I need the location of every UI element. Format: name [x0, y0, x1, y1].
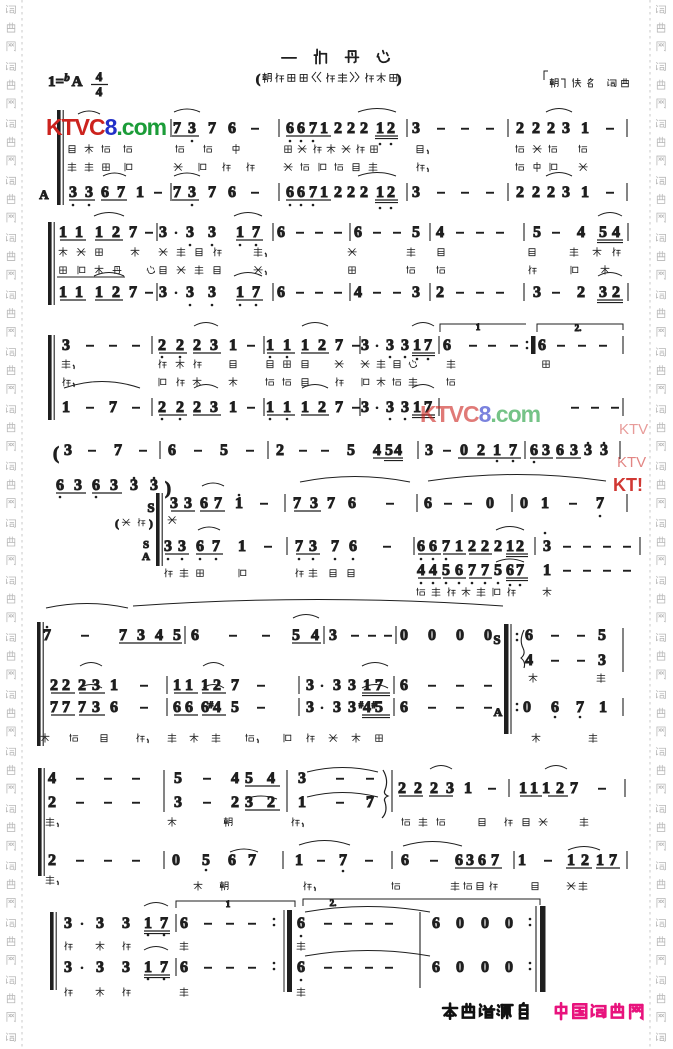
svg-text:2: 2 [398, 780, 406, 797]
svg-text:4: 4 [363, 699, 371, 716]
svg-text:6: 6 [228, 852, 236, 869]
svg-text:6: 6 [432, 959, 440, 976]
svg-text:7: 7 [173, 184, 181, 201]
svg-text:7: 7 [214, 495, 222, 512]
svg-text:6: 6 [455, 852, 463, 869]
svg-text:): ) [149, 518, 153, 530]
svg-text:3: 3 [466, 852, 474, 869]
svg-text:0: 0 [456, 959, 464, 976]
svg-text:0: 0 [400, 627, 408, 644]
svg-text:4: 4 [612, 224, 620, 241]
svg-text:6: 6 [200, 495, 208, 512]
svg-text:4: 4 [96, 69, 103, 84]
svg-text:3: 3 [208, 284, 216, 301]
svg-text:1: 1 [173, 677, 181, 694]
svg-text:1: 1 [413, 337, 421, 354]
svg-text:3: 3 [184, 495, 192, 512]
svg-text:2: 2 [430, 780, 438, 797]
svg-text:6: 6 [185, 699, 193, 716]
svg-text:6: 6 [110, 699, 118, 716]
svg-text:2: 2 [387, 184, 395, 201]
svg-text:5: 5 [599, 224, 607, 241]
svg-text:6: 6 [168, 442, 176, 459]
svg-text:3: 3 [412, 184, 420, 201]
svg-text:1: 1 [567, 852, 575, 869]
svg-text:3: 3 [386, 399, 394, 416]
svg-text:KTV: KTV [619, 421, 648, 438]
svg-text:(: ( [53, 443, 59, 464]
svg-text:0: 0 [505, 959, 513, 976]
svg-text:2: 2 [48, 794, 56, 811]
svg-text:1: 1 [376, 184, 384, 201]
svg-text:2: 2 [612, 284, 620, 301]
svg-text:7: 7 [570, 780, 578, 797]
svg-text:7: 7 [331, 538, 339, 555]
svg-text:3: 3 [348, 699, 356, 716]
svg-text:2: 2 [50, 677, 58, 694]
svg-text:3: 3 [361, 399, 369, 416]
svg-text:3: 3 [333, 699, 341, 716]
svg-text:7: 7 [481, 562, 489, 579]
svg-text:3: 3 [309, 538, 317, 555]
svg-text:2: 2 [577, 284, 585, 301]
svg-text:1: 1 [226, 899, 231, 909]
svg-text:6: 6 [551, 699, 559, 716]
svg-text:6: 6 [173, 699, 181, 716]
svg-text:3: 3 [600, 442, 608, 459]
svg-text:7: 7 [231, 677, 239, 694]
svg-text:5: 5 [220, 442, 228, 459]
svg-text:2: 2 [516, 184, 524, 201]
svg-text:4: 4 [155, 627, 163, 644]
svg-text:3: 3 [122, 959, 130, 976]
svg-text:1: 1 [581, 120, 589, 137]
svg-text:2: 2 [360, 120, 368, 137]
svg-text:7: 7 [117, 184, 125, 201]
svg-text:2: 2 [414, 780, 422, 797]
svg-text:7: 7 [339, 852, 347, 869]
svg-text:6: 6 [530, 442, 538, 459]
svg-text:2.: 2. [575, 323, 582, 333]
svg-text:3: 3 [159, 224, 167, 241]
svg-text:3: 3 [186, 224, 194, 241]
svg-text:5: 5 [292, 627, 300, 644]
svg-text:A: A [494, 705, 503, 719]
svg-text:3: 3 [533, 284, 541, 301]
svg-text:1: 1 [301, 337, 309, 354]
svg-text:3: 3 [562, 120, 570, 137]
svg-text:2: 2 [516, 120, 524, 137]
svg-text:2: 2 [547, 184, 555, 201]
svg-text:1: 1 [185, 677, 193, 694]
svg-text:1: 1 [519, 780, 527, 797]
svg-text:1: 1 [298, 794, 306, 811]
svg-text:1: 1 [596, 852, 604, 869]
svg-text:3: 3 [178, 538, 186, 555]
svg-text:3: 3 [69, 184, 77, 201]
svg-text:1: 1 [144, 915, 152, 932]
svg-text:7: 7 [43, 627, 51, 644]
svg-text:1: 1 [59, 224, 67, 241]
svg-text:3: 3 [543, 538, 551, 555]
svg-text:1: 1 [266, 399, 274, 416]
svg-text:3: 3 [298, 770, 306, 787]
svg-text:2: 2 [477, 442, 485, 459]
svg-text:5: 5 [202, 852, 210, 869]
svg-text:2: 2 [176, 337, 184, 354]
svg-text:4: 4 [525, 652, 533, 669]
svg-text:3: 3 [85, 184, 93, 201]
svg-text:1: 1 [476, 322, 481, 332]
svg-text:3: 3 [329, 627, 337, 644]
svg-text:3: 3 [599, 284, 607, 301]
svg-text:6: 6 [297, 120, 305, 137]
svg-text:6: 6 [297, 915, 305, 932]
svg-text:3: 3 [188, 120, 196, 137]
svg-text:6: 6 [525, 627, 533, 644]
svg-text:1: 1 [236, 224, 244, 241]
svg-text:3: 3 [64, 442, 72, 459]
svg-text:7: 7 [442, 538, 450, 555]
svg-text:2: 2 [532, 120, 540, 137]
svg-text:7: 7 [468, 562, 476, 579]
svg-text:1: 1 [320, 120, 328, 137]
svg-text:7: 7 [160, 915, 168, 932]
svg-text:A: A [72, 74, 83, 90]
svg-text:2: 2 [158, 337, 166, 354]
svg-text:1: 1 [464, 780, 472, 797]
svg-text:7: 7 [212, 538, 220, 555]
svg-text:5: 5 [598, 627, 606, 644]
svg-text:6: 6 [349, 538, 357, 555]
svg-text:1: 1 [62, 399, 70, 416]
svg-text:3: 3 [92, 699, 100, 716]
svg-text:1: 1 [530, 780, 538, 797]
svg-text:5: 5 [412, 224, 420, 241]
svg-text:(: ( [115, 518, 119, 530]
svg-text:3: 3 [137, 627, 145, 644]
svg-text:7: 7 [576, 699, 584, 716]
svg-text:4: 4 [311, 627, 319, 644]
svg-text:2.: 2. [330, 898, 337, 908]
svg-text:#: # [359, 700, 364, 710]
svg-text:2: 2 [468, 538, 476, 555]
svg-text:3: 3 [386, 337, 394, 354]
svg-text:4: 4 [267, 770, 275, 787]
svg-text:5: 5 [533, 224, 541, 241]
svg-text:7: 7 [50, 699, 58, 716]
svg-text:6: 6 [348, 495, 356, 512]
svg-text:S: S [147, 500, 154, 515]
svg-text:5: 5 [494, 562, 502, 579]
svg-text:2: 2 [494, 538, 502, 555]
svg-text:0: 0 [481, 959, 489, 976]
svg-text:3: 3 [570, 442, 578, 459]
svg-text:3: 3 [122, 915, 130, 932]
svg-text:7: 7 [327, 495, 335, 512]
svg-text:6: 6 [228, 120, 236, 137]
svg-text:6: 6 [432, 915, 440, 932]
svg-text:1: 1 [236, 284, 244, 301]
svg-text:2: 2 [556, 780, 564, 797]
svg-text:1: 1 [541, 495, 549, 512]
svg-text:6: 6 [286, 184, 294, 201]
svg-text:0: 0 [520, 495, 528, 512]
svg-text:KTVC8.com: KTVC8.com [46, 114, 167, 140]
svg-text:3: 3 [64, 915, 72, 932]
svg-text:1: 1 [493, 442, 501, 459]
svg-text:0: 0 [505, 915, 513, 932]
svg-text:1: 1 [283, 399, 291, 416]
svg-text:3: 3 [130, 477, 138, 494]
svg-text:4: 4 [429, 562, 437, 579]
svg-text:3: 3 [74, 477, 82, 494]
svg-text:4: 4 [96, 84, 103, 99]
svg-text:7: 7 [208, 120, 216, 137]
svg-text:3: 3 [401, 399, 409, 416]
svg-text:2: 2 [387, 120, 395, 137]
svg-text:3: 3 [208, 224, 216, 241]
svg-text:3: 3 [306, 699, 314, 716]
svg-text:4: 4 [577, 224, 585, 241]
svg-text:3: 3 [186, 284, 194, 301]
svg-text:2: 2 [231, 794, 239, 811]
svg-text:6: 6 [196, 538, 204, 555]
svg-text:KTVC8.com: KTVC8.com [420, 401, 541, 427]
svg-text:2: 2 [318, 337, 326, 354]
svg-text:6: 6 [92, 477, 100, 494]
svg-text:3: 3 [361, 337, 369, 354]
svg-text:0: 0 [456, 627, 464, 644]
svg-text:A: A [142, 551, 150, 563]
svg-text:5: 5 [385, 442, 393, 459]
svg-text:1: 1 [506, 538, 514, 555]
svg-text:4: 4 [354, 284, 362, 301]
svg-text:7: 7 [208, 184, 216, 201]
svg-text:1: 1 [518, 852, 526, 869]
svg-text:3: 3 [170, 495, 178, 512]
svg-text:6: 6 [506, 562, 514, 579]
svg-text:3: 3 [542, 442, 550, 459]
svg-text:3: 3 [306, 677, 314, 694]
svg-text:3: 3 [110, 477, 118, 494]
svg-text:7: 7 [335, 399, 343, 416]
svg-text:1: 1 [75, 284, 83, 301]
svg-text:(: ( [256, 71, 260, 86]
svg-text:2: 2 [334, 120, 342, 137]
svg-text:1: 1 [542, 780, 550, 797]
svg-text:4: 4 [48, 770, 56, 787]
svg-text:4: 4 [417, 562, 425, 579]
svg-text:4: 4 [213, 699, 221, 716]
svg-text:3: 3 [446, 780, 454, 797]
svg-text:0: 0 [486, 495, 494, 512]
svg-text:3: 3 [412, 120, 420, 137]
svg-text:0: 0 [428, 627, 436, 644]
svg-text:6: 6 [478, 852, 486, 869]
svg-text:2: 2 [516, 538, 524, 555]
svg-text:6: 6 [354, 224, 362, 241]
svg-text:6: 6 [400, 699, 408, 716]
svg-text:4: 4 [373, 442, 381, 459]
svg-text:6: 6 [401, 852, 409, 869]
svg-text:6: 6 [424, 495, 432, 512]
svg-text:7: 7 [293, 495, 301, 512]
svg-text:4: 4 [436, 224, 444, 241]
svg-text:6: 6 [228, 184, 236, 201]
svg-text:6: 6 [56, 477, 64, 494]
svg-text:7: 7 [78, 699, 86, 716]
svg-text:S: S [143, 539, 149, 551]
svg-text:2: 2 [276, 442, 284, 459]
svg-text:0: 0 [172, 852, 180, 869]
svg-text:0: 0 [523, 699, 531, 716]
svg-text:2: 2 [112, 284, 120, 301]
svg-text:2: 2 [547, 120, 555, 137]
svg-text:3: 3 [412, 284, 420, 301]
svg-text:7: 7 [114, 442, 122, 459]
svg-text:b: b [64, 72, 70, 84]
svg-text:1: 1 [235, 495, 243, 512]
svg-text:3: 3 [401, 337, 409, 354]
svg-text:7: 7 [509, 442, 517, 459]
svg-text:2: 2 [347, 120, 355, 137]
svg-text:7: 7 [309, 120, 317, 137]
svg-text:1: 1 [144, 959, 152, 976]
svg-text:2: 2 [318, 399, 326, 416]
svg-text:6: 6 [297, 959, 305, 976]
svg-text:1: 1 [75, 224, 83, 241]
svg-text:3: 3 [584, 442, 592, 459]
svg-text:2: 2 [347, 184, 355, 201]
svg-text:3: 3 [425, 442, 433, 459]
svg-text:2: 2 [112, 224, 120, 241]
svg-text:1: 1 [301, 399, 309, 416]
svg-text:6: 6 [286, 120, 294, 137]
svg-text:1: 1 [229, 399, 237, 416]
svg-text:3: 3 [96, 915, 104, 932]
svg-text:2: 2 [360, 184, 368, 201]
svg-text:2: 2 [532, 184, 540, 201]
svg-text:7: 7 [295, 538, 303, 555]
svg-text:6: 6 [455, 562, 463, 579]
svg-text:3: 3 [562, 184, 570, 201]
svg-text:7: 7 [173, 120, 181, 137]
svg-text:7: 7 [252, 224, 260, 241]
svg-text:1: 1 [238, 538, 246, 555]
svg-text:1: 1 [136, 184, 144, 201]
svg-text:2: 2 [481, 538, 489, 555]
svg-text:7: 7 [129, 284, 137, 301]
svg-text:0: 0 [460, 442, 468, 459]
svg-text:2: 2 [436, 284, 444, 301]
svg-text:7: 7 [62, 699, 70, 716]
svg-text:1: 1 [295, 852, 303, 869]
svg-text:S: S [493, 632, 500, 647]
svg-text:3: 3 [96, 959, 104, 976]
svg-text:3: 3 [64, 959, 72, 976]
svg-text:1: 1 [455, 538, 463, 555]
svg-text:1: 1 [283, 337, 291, 354]
svg-text:2: 2 [334, 184, 342, 201]
svg-text:3: 3 [62, 337, 70, 354]
svg-text:6: 6 [277, 224, 285, 241]
svg-text:0: 0 [484, 627, 492, 644]
svg-text:1: 1 [376, 120, 384, 137]
svg-text:KTV: KTV [617, 454, 646, 471]
svg-text:7: 7 [252, 284, 260, 301]
svg-text:0: 0 [456, 915, 464, 932]
svg-text:3: 3 [598, 652, 606, 669]
svg-text:7: 7 [335, 337, 343, 354]
svg-text:7: 7 [309, 184, 317, 201]
svg-text:1: 1 [320, 184, 328, 201]
svg-text:7: 7 [596, 495, 604, 512]
svg-text:7: 7 [109, 399, 117, 416]
svg-text:0: 0 [481, 915, 489, 932]
svg-text:1: 1 [95, 284, 103, 301]
svg-text:3: 3 [210, 399, 218, 416]
svg-text:1: 1 [543, 562, 551, 579]
svg-text:6: 6 [556, 442, 564, 459]
svg-text:3: 3 [348, 677, 356, 694]
svg-text:): ) [397, 71, 401, 86]
svg-text:7: 7 [516, 562, 524, 579]
svg-text:6: 6 [417, 538, 425, 555]
svg-text:7: 7 [609, 852, 617, 869]
svg-text:2: 2 [48, 852, 56, 869]
svg-text:6: 6 [443, 337, 451, 354]
svg-text:2: 2 [158, 399, 166, 416]
svg-text:2: 2 [62, 677, 70, 694]
svg-text:1: 1 [229, 337, 237, 354]
svg-text:6: 6 [101, 184, 109, 201]
svg-text:3: 3 [210, 337, 218, 354]
svg-text:4: 4 [231, 770, 239, 787]
svg-text:4: 4 [394, 442, 402, 459]
svg-text:KT!: KT! [613, 475, 643, 495]
svg-text:#: # [209, 700, 214, 710]
svg-text:1: 1 [110, 677, 118, 694]
svg-text:5: 5 [347, 442, 355, 459]
svg-text:1: 1 [581, 184, 589, 201]
svg-text:2: 2 [193, 337, 201, 354]
svg-text:2: 2 [581, 852, 589, 869]
svg-text:1=: 1= [48, 74, 64, 90]
svg-text:7: 7 [129, 224, 137, 241]
svg-text:6: 6 [429, 538, 437, 555]
svg-text:7: 7 [366, 794, 374, 811]
svg-text:6: 6 [538, 337, 546, 354]
svg-text:6: 6 [191, 627, 199, 644]
svg-text:2: 2 [176, 399, 184, 416]
svg-text:3: 3 [159, 284, 167, 301]
svg-text:5: 5 [174, 770, 182, 787]
svg-text:6: 6 [297, 184, 305, 201]
svg-text:1: 1 [59, 284, 67, 301]
svg-text:5: 5 [231, 699, 239, 716]
svg-text:7: 7 [424, 337, 432, 354]
svg-text:1: 1 [95, 224, 103, 241]
svg-text:3: 3 [174, 794, 182, 811]
svg-text:1: 1 [266, 337, 274, 354]
svg-text:7: 7 [248, 852, 256, 869]
svg-text:6: 6 [180, 959, 188, 976]
svg-text:2: 2 [193, 399, 201, 416]
svg-text:5: 5 [442, 562, 450, 579]
svg-text:5: 5 [173, 627, 181, 644]
svg-text:#: # [372, 700, 377, 710]
